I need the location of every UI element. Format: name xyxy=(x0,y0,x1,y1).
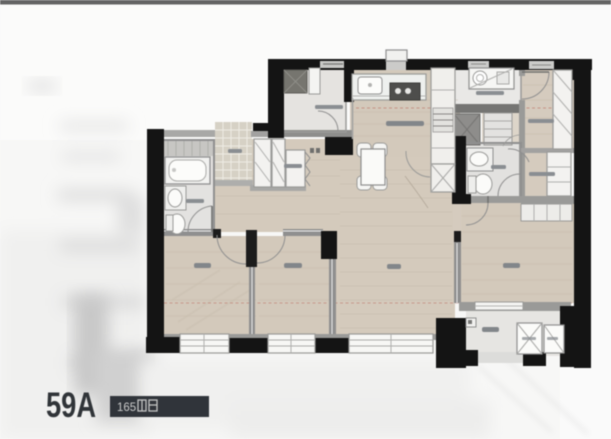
svg-text:59A: 59A xyxy=(46,386,96,425)
svg-text:165: 165 xyxy=(117,402,136,414)
